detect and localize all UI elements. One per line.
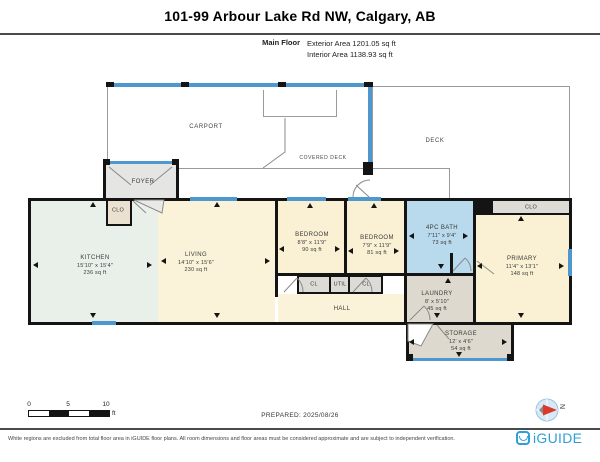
iguide-logo: iGUIDE bbox=[516, 430, 582, 446]
window bbox=[287, 197, 326, 201]
dimension-arrow bbox=[371, 203, 377, 208]
label-primary: PRIMARY11'4" x 13'1"148 sq ft bbox=[506, 256, 538, 278]
label-cl-left: CL bbox=[310, 281, 317, 288]
label-hall: HALL bbox=[334, 306, 351, 314]
dimension-arrow bbox=[147, 262, 152, 268]
dimension-arrow bbox=[265, 258, 270, 264]
label-carport: CARPORT bbox=[189, 124, 222, 132]
dimension-arrow bbox=[438, 264, 444, 269]
dimension-arrow bbox=[348, 248, 353, 254]
window bbox=[348, 197, 381, 201]
prepared-date: PREPARED: 2025/08/26 bbox=[0, 412, 600, 419]
label-bath: 4PC BATH7'11" x 9'4"73 sq ft bbox=[426, 225, 458, 247]
exterior-area: Exterior Area 1201.05 sq ft bbox=[307, 39, 396, 48]
scale-tick-5: 5 bbox=[63, 401, 73, 408]
dimension-arrow bbox=[90, 313, 96, 318]
footer-disclaimer: White regions are excluded from total fl… bbox=[8, 436, 455, 442]
iguide-logo-text: iGUIDE bbox=[533, 430, 582, 446]
compass-north-label: N bbox=[558, 404, 565, 409]
dimension-arrow bbox=[559, 263, 564, 269]
window bbox=[92, 321, 116, 325]
label-bedroom1: BEDROOM8'8" x 11'9"90 sq ft bbox=[295, 232, 329, 254]
wall-block bbox=[473, 198, 493, 215]
label-bedroom2: BEDROOM7'9" x 11'9"81 sq ft bbox=[360, 235, 394, 257]
dimension-arrow bbox=[409, 233, 414, 239]
dimension-arrow bbox=[477, 263, 482, 269]
wall-cap bbox=[406, 354, 413, 361]
dimension-arrow bbox=[409, 339, 414, 345]
footer-divider bbox=[0, 428, 600, 430]
wall-stub bbox=[450, 253, 453, 273]
interior-wall bbox=[344, 201, 347, 276]
dimension-arrow bbox=[463, 233, 468, 239]
dimension-arrow bbox=[33, 262, 38, 268]
carport-edge-railing bbox=[107, 83, 372, 87]
dimension-arrow bbox=[518, 313, 524, 318]
label-covered-deck: COVERED DECK bbox=[299, 155, 346, 162]
carport-shed bbox=[263, 90, 337, 117]
post-cap bbox=[278, 82, 286, 87]
floorplan-page: { "header": { "title": "101-99 Arbour La… bbox=[0, 0, 600, 462]
scale-tick-0: 0 bbox=[25, 401, 33, 408]
wall-cap bbox=[172, 159, 179, 165]
label-storage: STORAGE12' x 4'6"54 sq ft bbox=[445, 331, 477, 353]
iguide-logo-icon bbox=[516, 431, 530, 445]
dimension-arrow bbox=[307, 203, 313, 208]
compass-icon: N bbox=[530, 394, 574, 426]
label-cl-right: CL bbox=[362, 281, 369, 288]
dimension-arrow bbox=[161, 258, 166, 264]
post-cap bbox=[106, 82, 114, 87]
label-kitchen: KITCHEN15'10" x 15'4"236 sq ft bbox=[77, 255, 113, 277]
dimension-arrow bbox=[90, 202, 96, 207]
interior-wall bbox=[275, 201, 278, 297]
label-util: UTIL bbox=[334, 281, 347, 288]
carport-right-railing bbox=[368, 86, 372, 164]
wall-cap bbox=[507, 354, 514, 361]
covered-deck-area bbox=[177, 168, 450, 199]
header-divider bbox=[0, 33, 600, 35]
label-living: LIVING14'10" x 15'6"230 sq ft bbox=[178, 252, 214, 274]
dimension-arrow bbox=[445, 278, 451, 283]
label-foyer: FOYER bbox=[132, 179, 155, 187]
scale-tick-10: 10 bbox=[100, 401, 112, 408]
interior-wall bbox=[473, 201, 476, 322]
page-title: 101-99 Arbour Lake Rd NW, Calgary, AB bbox=[0, 8, 600, 24]
label-clo-primary: CLO bbox=[525, 204, 537, 211]
post-cap bbox=[364, 82, 373, 87]
dimension-arrow bbox=[279, 246, 284, 252]
window bbox=[190, 197, 237, 201]
post-cap bbox=[363, 162, 373, 175]
dimension-arrow bbox=[214, 202, 220, 207]
dimension-arrow bbox=[335, 246, 340, 252]
dimension-arrow bbox=[214, 313, 220, 318]
dimension-arrow bbox=[434, 313, 440, 318]
dimension-arrow bbox=[518, 216, 524, 221]
label-laundry: LAUNDRY8' x 5'10"45 sq ft bbox=[421, 291, 452, 313]
floor-label: Main Floor bbox=[238, 38, 300, 47]
dimension-arrow bbox=[502, 339, 507, 345]
interior-area: Interior Area 1138.93 sq ft bbox=[307, 50, 393, 59]
interior-wall bbox=[404, 201, 407, 322]
wall-cap bbox=[103, 159, 110, 165]
label-deck: DECK bbox=[425, 138, 444, 146]
label-clo-foyer: CLO bbox=[112, 207, 124, 214]
post-cap bbox=[181, 82, 189, 87]
window bbox=[568, 249, 572, 276]
dimension-arrow bbox=[394, 248, 399, 254]
